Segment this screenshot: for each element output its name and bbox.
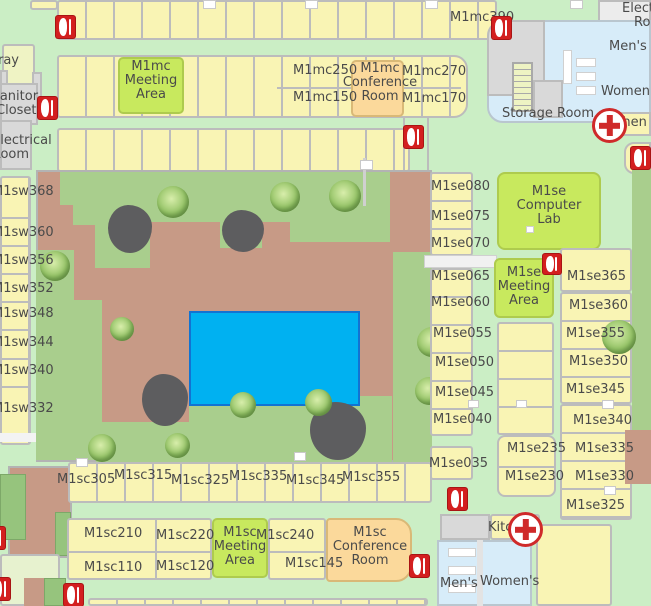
wall — [499, 466, 554, 468]
fire-extinguisher-icon[interactable] — [492, 17, 511, 39]
door-marker — [570, 0, 583, 9]
fixture — [563, 50, 572, 84]
wall — [155, 520, 157, 578]
utility-room — [440, 514, 490, 540]
tree-icon — [329, 180, 361, 212]
room-m1se-computer-lab[interactable] — [497, 172, 601, 250]
fire-extinguisher-icon[interactable] — [543, 254, 561, 274]
fire-extinguisher-icon[interactable] — [404, 126, 423, 148]
fire-extinguisher-icon[interactable] — [56, 16, 75, 38]
tree-icon — [157, 186, 189, 218]
room-janitor-closet[interactable] — [0, 83, 38, 125]
room-m1se035[interactable] — [430, 446, 473, 480]
fire-extinguisher-icon[interactable] — [0, 578, 10, 600]
door-marker — [604, 486, 616, 495]
courtyard-lawn-left — [36, 300, 102, 460]
room-m1mc-conference[interactable] — [351, 60, 404, 117]
tree-icon — [305, 389, 332, 416]
door-marker — [305, 0, 318, 9]
fire-extinguisher-icon[interactable] — [410, 555, 429, 577]
wall — [69, 551, 210, 553]
rooms-column-m1se-300s[interactable] — [560, 404, 632, 520]
wall — [477, 540, 483, 606]
poi-marker — [526, 226, 534, 233]
wall — [2, 245, 28, 247]
room-m1sc-meeting-area[interactable] — [212, 518, 268, 578]
first-aid-cross-icon[interactable] — [508, 512, 543, 547]
door-marker — [468, 400, 479, 408]
wall — [270, 551, 324, 553]
room-m1sc-conference[interactable] — [326, 518, 412, 582]
fire-extinguisher-icon[interactable] — [631, 147, 650, 169]
door-marker — [203, 0, 216, 9]
room-block[interactable] — [536, 524, 612, 606]
wall — [2, 329, 28, 331]
door-marker — [602, 400, 614, 409]
stairs-icon — [512, 62, 533, 112]
wall — [427, 118, 429, 172]
room-electrical[interactable] — [0, 120, 32, 170]
wall — [2, 273, 28, 275]
fixture — [448, 566, 476, 575]
door-marker — [425, 0, 438, 9]
tree-icon — [110, 317, 134, 341]
rooms-column-m1se[interactable] — [430, 172, 473, 256]
fixture — [448, 548, 476, 557]
rooms-block-m1sc[interactable] — [67, 518, 212, 580]
fixture — [576, 58, 596, 67]
fixture — [576, 86, 596, 95]
tree-icon — [602, 320, 636, 354]
hallway — [424, 255, 497, 268]
door-marker — [360, 160, 373, 170]
patio-right-edge — [625, 430, 651, 484]
rooms-block-m1se-200s[interactable] — [497, 435, 556, 497]
planter — [44, 578, 66, 606]
wall — [2, 217, 28, 219]
rooms-strip-top-3[interactable] — [57, 128, 410, 172]
courtyard-lawn-right — [393, 252, 432, 462]
wall — [2, 386, 28, 388]
rooms-column-m1se[interactable] — [430, 268, 473, 436]
tree-icon — [270, 182, 300, 212]
fixture — [448, 584, 476, 593]
rooms-strip[interactable] — [88, 598, 428, 606]
patio-annex — [24, 578, 44, 606]
room-m1mc-meeting-area[interactable] — [118, 57, 184, 114]
rooms-column-m1sw[interactable] — [0, 176, 31, 445]
rooms-strip-m1sc-300s[interactable] — [68, 462, 432, 503]
tree-icon — [230, 392, 256, 418]
fixture — [576, 72, 596, 81]
tree-icon — [88, 434, 116, 462]
room-m1se365[interactable] — [560, 248, 632, 292]
fire-extinguisher-icon[interactable] — [38, 97, 57, 119]
wall — [2, 358, 28, 360]
door-marker — [294, 452, 306, 461]
rooms-column-m1se-mid[interactable] — [497, 322, 554, 435]
room-storage[interactable] — [533, 80, 563, 118]
fire-extinguisher-icon[interactable] — [448, 488, 467, 510]
pool — [189, 311, 360, 406]
door-marker — [76, 458, 88, 467]
room-block[interactable] — [30, 0, 58, 10]
tree-icon — [40, 251, 70, 281]
lawn-right-edge — [632, 168, 651, 430]
fire-extinguisher-icon[interactable] — [64, 584, 83, 606]
tree-icon — [165, 433, 190, 458]
wall — [2, 301, 28, 303]
fire-extinguisher-icon[interactable] — [0, 527, 5, 549]
door-marker — [516, 400, 527, 408]
rooms-block-m1sc[interactable] — [268, 518, 326, 580]
first-aid-cross-icon[interactable] — [592, 108, 627, 143]
floor-plan-map[interactable]: M1mc390 M1mc250 M1mc150 M1mc270 M1mc170 … — [0, 0, 651, 606]
